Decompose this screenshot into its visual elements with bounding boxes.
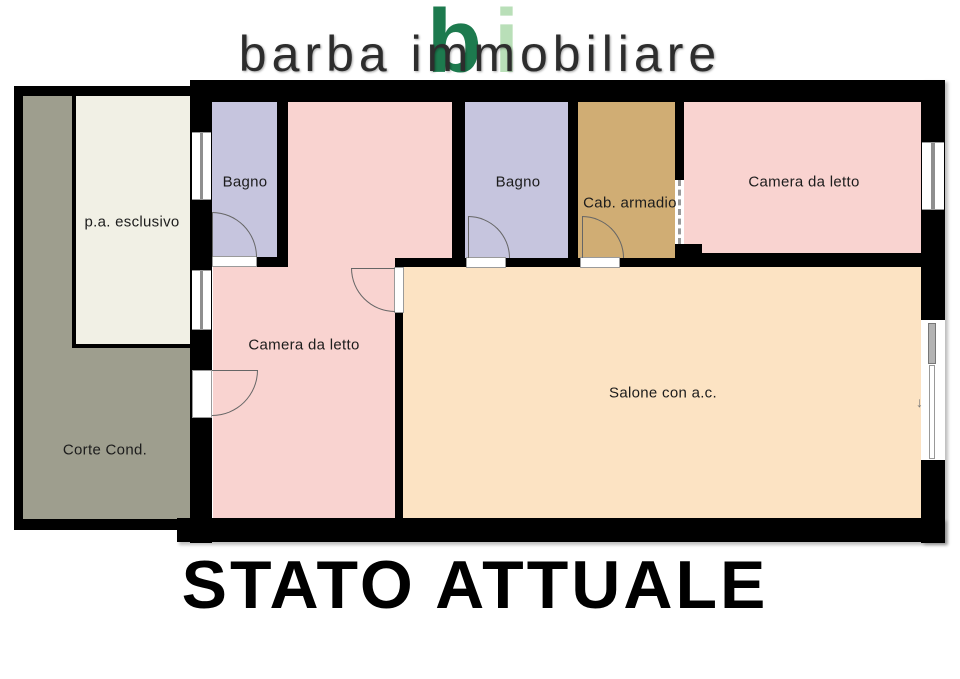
balcony-fixed-panel: [928, 323, 936, 364]
outer-wall-bottom: [177, 518, 945, 542]
logo-text: barba immobiliare: [0, 28, 960, 80]
corte-wall-bottom: [14, 519, 190, 530]
corte-wall-left: [14, 86, 23, 530]
room-label-corte: Corte Cond.: [63, 442, 147, 459]
plan-title: STATO ATTUALE: [0, 550, 950, 620]
wall-under-bagno-left: [257, 257, 288, 267]
door-sill-exterior: [192, 370, 212, 418]
wall-bagno-right-left: [452, 102, 465, 267]
wall-camera-right-bottom: [675, 253, 921, 267]
door-leaf-bagno-right: [468, 216, 469, 258]
door-leaf-bagno-left: [212, 212, 213, 257]
corte-wall-top: [14, 86, 190, 96]
door-leaf-cab: [582, 216, 583, 258]
window-left-upper: [192, 132, 211, 200]
room-camera-left-upper: [288, 102, 452, 267]
door-sill-bagno-right: [466, 257, 506, 268]
wall-salone-top-b: [506, 258, 580, 267]
door-sill-salone-camera: [394, 267, 404, 313]
room-label-camera-left: Camera da letto: [248, 337, 359, 354]
wall-bagno-right-right: [568, 102, 578, 267]
opening-cab-camera: [675, 180, 684, 244]
wall-salone-top-a: [395, 258, 466, 267]
wall-cab-right-upper: [675, 102, 684, 180]
room-label-cab-armadio: Cab. armadio: [583, 195, 677, 212]
window-left-lower: [192, 270, 211, 330]
balcony-sliding-panel: [929, 365, 935, 459]
wall-bagno-left-right: [277, 102, 288, 267]
room-label-camera-right: Camera da letto: [748, 174, 859, 191]
window-camera-right: [922, 142, 944, 210]
door-sill-bagno-left: [212, 256, 257, 267]
door-sill-cab: [580, 257, 620, 268]
room-label-bagno-right: Bagno: [496, 174, 541, 191]
room-label-salone: Salone con a.c.: [609, 385, 717, 402]
wall-salone-left: [395, 312, 403, 518]
opening-dashed-line: [678, 180, 681, 244]
room-label-bagno-left: Bagno: [223, 174, 268, 191]
wall-salone-top-c: [620, 258, 678, 267]
floor-plan-page: b i barba immobiliare: [0, 0, 960, 679]
balcony-door: ↓: [921, 320, 945, 460]
door-leaf-exterior: [212, 370, 258, 371]
room-label-pa-esclusivo: p.a. esclusivo: [84, 214, 179, 231]
outer-wall-top: [190, 80, 945, 102]
slide-direction-arrow-icon: ↓: [916, 394, 923, 410]
door-leaf-salone-camera: [351, 268, 395, 269]
